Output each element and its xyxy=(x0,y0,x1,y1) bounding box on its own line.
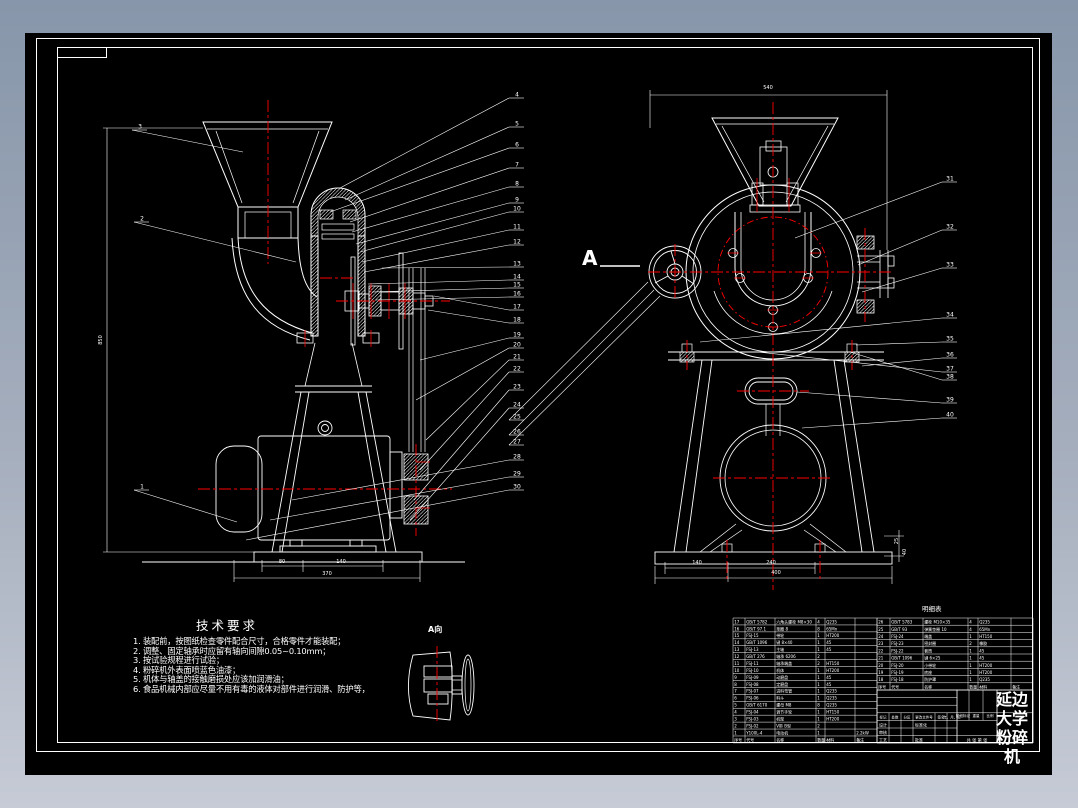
titleblock-footer-label: 标记 xyxy=(880,715,888,720)
titleblock-sheet-info: 共 张 第 张 xyxy=(967,737,989,744)
parts-table-cell: 1 xyxy=(969,648,972,653)
dimension-label: 240 xyxy=(766,560,776,566)
leader-line xyxy=(340,98,509,188)
parts-table-cell: Q235 xyxy=(979,620,990,625)
leader-line xyxy=(345,127,509,200)
parts-table-cell: FSJ-24 xyxy=(891,634,904,639)
parts-table-cell: 1 xyxy=(817,668,820,673)
parts-table-cell: 垫圈 8 xyxy=(776,625,788,631)
parts-table-cell: 电动机 xyxy=(776,729,788,735)
parts-table-cell: 密封圈 xyxy=(924,640,936,646)
parts-table-cell: HT200 xyxy=(826,633,840,638)
parts-table-cell: 4 xyxy=(969,627,972,632)
titleblock-approval-label: 工艺 xyxy=(879,738,887,743)
parts-table-cell: 材料 xyxy=(979,683,987,689)
parts-table-cell: 9 xyxy=(734,675,737,680)
parts-table-cell: 进料弯管 xyxy=(776,688,792,694)
parts-table-cell: 料斗 xyxy=(776,695,784,701)
callout-number: 10 xyxy=(513,206,521,213)
parts-table-cell: 5 xyxy=(734,703,737,708)
parts-table-cell: Q235 xyxy=(826,689,837,694)
leader-line xyxy=(270,477,509,520)
parts-table-cell: 机体 xyxy=(776,667,784,673)
leader-line xyxy=(368,280,509,284)
parts-table-cell: FSJ-18 xyxy=(891,677,904,682)
titleblock-name-line: 机 xyxy=(992,749,1032,765)
parts-table-cell: 带轮 xyxy=(776,632,784,638)
parts-table-cell: 17 xyxy=(734,619,740,624)
parts-table-cell: 13 xyxy=(734,647,740,652)
leader-line xyxy=(414,390,509,500)
parts-table-cell: 调节手轮 xyxy=(776,709,792,715)
parts-table-cell: 2.2kW xyxy=(856,730,869,735)
section-arrow-label: A xyxy=(582,248,597,268)
callout-number: 1 xyxy=(140,484,144,491)
parts-table-cell: 螺母 M8 xyxy=(776,702,792,708)
dimension-label: 370 xyxy=(322,571,332,577)
parts-table-cell: GB/T 5783 xyxy=(891,620,913,625)
callout-number: 16 xyxy=(513,291,521,298)
parts-table-cell: 主轴 xyxy=(776,646,784,652)
parts-table-cell: 45 xyxy=(826,640,832,645)
callout-number: 25 xyxy=(513,414,521,421)
parts-table-cell: 轴承端盖 xyxy=(776,660,792,666)
parts-table-cell: HT200 xyxy=(979,663,993,668)
parts-table-cell: 10 xyxy=(734,668,740,673)
parts-table-cell: 数量 xyxy=(817,736,825,742)
parts-table-cell: 1 xyxy=(969,670,972,675)
left-view-dimensions xyxy=(103,128,420,582)
parts-table-cell: 45 xyxy=(826,647,832,652)
leader-line xyxy=(372,288,509,292)
callout-number: 31 xyxy=(946,176,954,183)
titleblock-approval-label: 审核 xyxy=(879,729,887,735)
parts-table-cell: 1 xyxy=(734,730,737,735)
parts-table-cell: 2 xyxy=(817,661,820,666)
parts-table-cell: FSJ-06 xyxy=(746,696,759,701)
dimension-label: 80 xyxy=(279,559,285,565)
leader-line xyxy=(420,372,509,470)
parts-table-cell: 24 xyxy=(878,634,884,639)
parts-table-cell: 名称 xyxy=(776,736,784,742)
parts-table-cell: 1 xyxy=(817,730,820,735)
callout-number: 4 xyxy=(515,92,519,99)
leader-line xyxy=(382,267,509,268)
parts-table-cell: 键 6×25 xyxy=(924,655,941,661)
leader-line xyxy=(420,338,509,360)
parts-table-cell: 螺栓 M10×35 xyxy=(924,619,951,625)
parts-table-cell: 1 xyxy=(817,633,820,638)
parts-table-cell: Q235 xyxy=(979,677,990,682)
titleblock-footer-label: 分区 xyxy=(904,715,912,720)
parts-table-cell: 防护罩 xyxy=(924,676,936,682)
leader-line xyxy=(132,130,243,152)
callout-number: 28 xyxy=(513,454,521,461)
parts-table-cell: 11 xyxy=(734,661,740,666)
parts-table-cell: GB/T 97.1 xyxy=(746,626,766,631)
parts-table-cell: HT150 xyxy=(979,634,993,639)
parts-table-cell: GB/T 93 xyxy=(891,627,907,632)
tech-requirement-item: 6. 食品机械内部应尽量不用有毒的液体对部件进行润滑、防护等， xyxy=(133,685,370,693)
tech-requirement-item: 3. 按试验规程进行试验； xyxy=(133,656,224,664)
parts-table-cell: Q235 xyxy=(826,703,837,708)
leader-line xyxy=(795,182,942,238)
front-stand xyxy=(655,344,892,564)
parts-table-cell: 45 xyxy=(979,648,985,653)
parts-table-cell: FSJ-02 xyxy=(746,723,759,728)
leader-line xyxy=(797,392,942,403)
leader-line xyxy=(350,168,509,222)
parts-table-cell: FSJ-03 xyxy=(746,717,759,722)
parts-table-cell: 1 xyxy=(817,696,820,701)
callout-number: 32 xyxy=(946,224,954,231)
parts-table-cell: HT150 xyxy=(826,661,840,666)
dimension-label: 25 xyxy=(894,538,900,544)
callout-number: 34 xyxy=(946,312,954,319)
callout-number: 22 xyxy=(513,366,521,373)
parts-table-cell: GB/T 6170 xyxy=(746,703,768,708)
callout-number: 5 xyxy=(515,121,519,128)
parts-table-cell: 45 xyxy=(826,682,832,687)
hopper-outline xyxy=(203,122,332,207)
parts-table-cell: FSJ-23 xyxy=(891,641,904,646)
parts-table-cell: 轴承 6206 xyxy=(776,653,796,659)
parts-table-cell: 2 xyxy=(969,641,972,646)
parts-table-cell: FSJ-11 xyxy=(746,661,759,666)
tech-requirement-item: 1. 装配前，按图纸检查零件配合尺寸，合格零件才能装配； xyxy=(133,637,345,645)
dimension-label: 400 xyxy=(771,570,781,576)
parts-table-cell: 序号 xyxy=(734,736,742,742)
parts-table-cell: 1 xyxy=(969,634,972,639)
parts-table-cell: 小带轮 xyxy=(924,662,936,668)
tech-requirements-title: 技术要求 xyxy=(196,620,258,633)
dimension-label: 540 xyxy=(763,85,773,91)
titleblock-name-line: 大学 xyxy=(992,711,1032,727)
parts-table-cell: 1 xyxy=(817,710,820,715)
parts-table-cell: 26 xyxy=(878,620,884,625)
parts-table-cell: 代号 xyxy=(891,683,899,689)
parts-table-cell: 动磨盘 xyxy=(776,674,788,680)
parts-table-cell: 材料 xyxy=(826,736,834,742)
callout-number: 24 xyxy=(513,402,521,409)
discharge-chute xyxy=(857,236,894,313)
parts-table-cell: 65Mn xyxy=(826,626,838,631)
callout-number: 21 xyxy=(513,354,521,361)
titleblock-name-line: 延边 xyxy=(992,692,1032,708)
parts-table-cell: 端盖 xyxy=(924,633,932,639)
parts-table-cell: 4 xyxy=(734,710,737,715)
leader-line xyxy=(246,490,509,540)
parts-table-cell: 1 xyxy=(817,640,820,645)
parts-table-cell: 2 xyxy=(817,654,820,659)
view-a-label: A向 xyxy=(428,626,442,634)
parts-table-cell: Q235 xyxy=(826,619,837,624)
parts-table-cell: 45 xyxy=(826,675,832,680)
parts-table-cell: 橡胶 xyxy=(979,640,987,646)
callout-number: 15 xyxy=(513,282,521,289)
cad-viewer-background: 3214567891011121314151617181920212223242… xyxy=(0,0,1078,808)
parts-table-cell: FSJ-04 xyxy=(746,710,759,715)
front-hopper xyxy=(712,118,838,206)
callout-number: 18 xyxy=(513,317,521,324)
parts-table-cell: 19 xyxy=(878,670,884,675)
callout-number: 8 xyxy=(515,181,519,188)
titleblock-approval-label: 设计 xyxy=(879,722,887,728)
parts-table-cell: HT200 xyxy=(826,668,840,673)
parts-table-cell: FSJ-07 xyxy=(746,689,759,694)
parts-table-cell: FSJ-13 xyxy=(746,647,759,652)
callout-number: 3 xyxy=(138,124,142,131)
leader-line xyxy=(416,348,509,400)
parts-table-cell: 1 xyxy=(817,675,820,680)
parts-table-cell: HT150 xyxy=(826,710,840,715)
parts-table-cell: 1 xyxy=(817,689,820,694)
dimension-label: 40 xyxy=(902,549,908,555)
callout-number: 13 xyxy=(513,261,521,268)
parts-table-cell: 6 xyxy=(734,696,737,701)
parts-table-cell: 数量 xyxy=(969,683,977,689)
parts-table-cell: 序号 xyxy=(878,683,886,689)
parts-table-cell: 23 xyxy=(878,641,884,646)
callout-number: 9 xyxy=(515,197,519,204)
callout-number: 37 xyxy=(946,366,954,373)
callout-number: 14 xyxy=(513,274,521,281)
parts-table-cell: 8 xyxy=(817,703,820,708)
callout-number: 27 xyxy=(513,439,521,446)
callout-number: 36 xyxy=(946,352,954,359)
leader-line xyxy=(292,460,509,500)
parts-table-cell: HT200 xyxy=(826,717,840,722)
callout-number: 11 xyxy=(513,224,521,231)
parts-table-cell: HT200 xyxy=(979,670,993,675)
parts-table-cell: 25 xyxy=(878,627,884,632)
callout-number: 30 xyxy=(513,484,521,491)
view-a-detail xyxy=(409,652,475,720)
parts-table-cell: 套筒 xyxy=(924,647,932,653)
titleblock-approval-label: 标准化 xyxy=(915,722,927,728)
callout-number: 20 xyxy=(513,342,521,349)
parts-table-cell: FSJ-08 xyxy=(746,682,759,687)
parts-table-cell: 1 xyxy=(969,663,972,668)
parts-table-cell: 名称 xyxy=(924,683,932,689)
callout-number: 38 xyxy=(946,374,954,381)
parts-table-cell: 键 8×40 xyxy=(776,639,793,645)
parts-table-cell: 1 xyxy=(969,656,972,661)
parts-table-cell: GB/T 5782 xyxy=(746,619,768,624)
tech-requirement-item: 5. 机体与轴盖的接触磨损处应该加润滑油； xyxy=(133,675,289,683)
leader-line xyxy=(134,490,237,522)
parts-table-cell: FSJ-10 xyxy=(746,668,759,673)
callout-number: 40 xyxy=(946,412,954,419)
parts-table-cell: 20 xyxy=(878,663,884,668)
titleblock-stage-label: 阶段标记 xyxy=(956,713,970,718)
parts-table-cell: 2 xyxy=(817,723,820,728)
parts-table-cell: GB/T 1096 xyxy=(891,656,913,661)
callout-number: 35 xyxy=(946,336,954,343)
parts-table-cell: 12 xyxy=(734,654,740,659)
leader-line xyxy=(362,230,509,262)
parts-table-cell: GB/T 276 xyxy=(746,654,765,659)
callout-number: 17 xyxy=(513,304,521,311)
leader-line xyxy=(802,418,942,428)
parts-table-cell: 2 xyxy=(734,723,737,728)
parts-table-cell: 65Mn xyxy=(979,627,991,632)
titleblock-approval-label: 批准 xyxy=(915,737,923,743)
titleblock-name-line: 粉碎 xyxy=(992,730,1032,746)
parts-table-cell: 22 xyxy=(878,648,884,653)
callout-number: 12 xyxy=(513,239,521,246)
parts-table-cell: 1 xyxy=(969,677,972,682)
callout-number: 29 xyxy=(513,471,521,478)
parts-table-caption: 明细表 xyxy=(922,606,942,613)
parts-table-cell: 代号 xyxy=(746,736,754,742)
parts-table-cell: 8 xyxy=(734,682,737,687)
left-view-section xyxy=(103,122,465,582)
parts-table-cell: 4 xyxy=(969,620,972,625)
leader-line xyxy=(509,296,660,445)
parts-table-cell: 1 xyxy=(817,682,820,687)
parts-table-cell: 备注 xyxy=(1012,683,1020,689)
parts-table-cell: 21 xyxy=(878,656,884,661)
parts-table-cell: 3 xyxy=(734,717,737,722)
parts-table-cell: 六角头螺栓 M8×30 xyxy=(776,618,812,624)
parts-table-cell: 45 xyxy=(979,656,985,661)
parts-table-cell: 15 xyxy=(734,633,740,638)
parts-table-cell: 14 xyxy=(734,640,740,645)
parts-table-cell: 底座 xyxy=(924,669,932,675)
callout-number: 7 xyxy=(515,162,519,169)
titleblock-footer-label: 处数 xyxy=(892,715,900,720)
parts-table-cell: 定磨盘 xyxy=(776,681,788,687)
leader-line xyxy=(428,310,509,323)
parts-table-cell: FSJ-22 xyxy=(891,648,904,653)
callout-number: 23 xyxy=(513,384,521,391)
dimension-label: 850 xyxy=(98,335,104,345)
parts-table-cell: 16 xyxy=(734,626,740,631)
parts-table-cell: 18 xyxy=(878,677,884,682)
parts-table-cell: 弹簧垫圈 10 xyxy=(924,626,947,632)
parts-table-cell: FSJ-20 xyxy=(891,663,904,668)
dimension-label: 140 xyxy=(692,560,702,566)
parts-table-cell: FSJ-09 xyxy=(746,675,759,680)
handwheel-profile xyxy=(462,655,474,715)
parts-table-cell: 备注 xyxy=(856,736,864,742)
parts-table-cell: FSJ-19 xyxy=(891,670,904,675)
leader-line xyxy=(426,360,509,440)
dimension-label: 140 xyxy=(336,559,346,565)
elbow-duct xyxy=(238,238,312,333)
parts-table-cell: 8 xyxy=(817,626,820,631)
parts-table-cell: 1 xyxy=(817,647,820,652)
leader-line xyxy=(134,222,296,262)
callout-number: 39 xyxy=(946,397,954,404)
parts-table-cell: 1 xyxy=(817,717,820,722)
leader-line xyxy=(330,148,509,212)
parts-table-cell: V带 B型 xyxy=(776,722,791,728)
callout-number: 2 xyxy=(140,216,144,223)
titleblock-stage-label: 重量 xyxy=(973,713,981,718)
leader-line xyxy=(509,290,654,435)
leader-line xyxy=(509,282,648,420)
parts-table-cell: Q235 xyxy=(826,696,837,701)
callout-number: 19 xyxy=(513,332,521,339)
parts-table-cell: GB/T 1096 xyxy=(746,640,768,645)
parts-table-cell: 7 xyxy=(734,689,737,694)
leader-line xyxy=(856,342,942,345)
parts-table-cell: 4 xyxy=(817,619,820,624)
callout-number: 33 xyxy=(946,262,954,269)
parts-table-cell: FSJ-15 xyxy=(746,633,759,638)
callout-number: 6 xyxy=(515,142,519,149)
parts-table-cell: Y100L-4 xyxy=(745,730,763,735)
titleblock-footer-label: 更改文件号 xyxy=(915,715,933,720)
parts-table-cell: 机架 xyxy=(776,716,784,722)
